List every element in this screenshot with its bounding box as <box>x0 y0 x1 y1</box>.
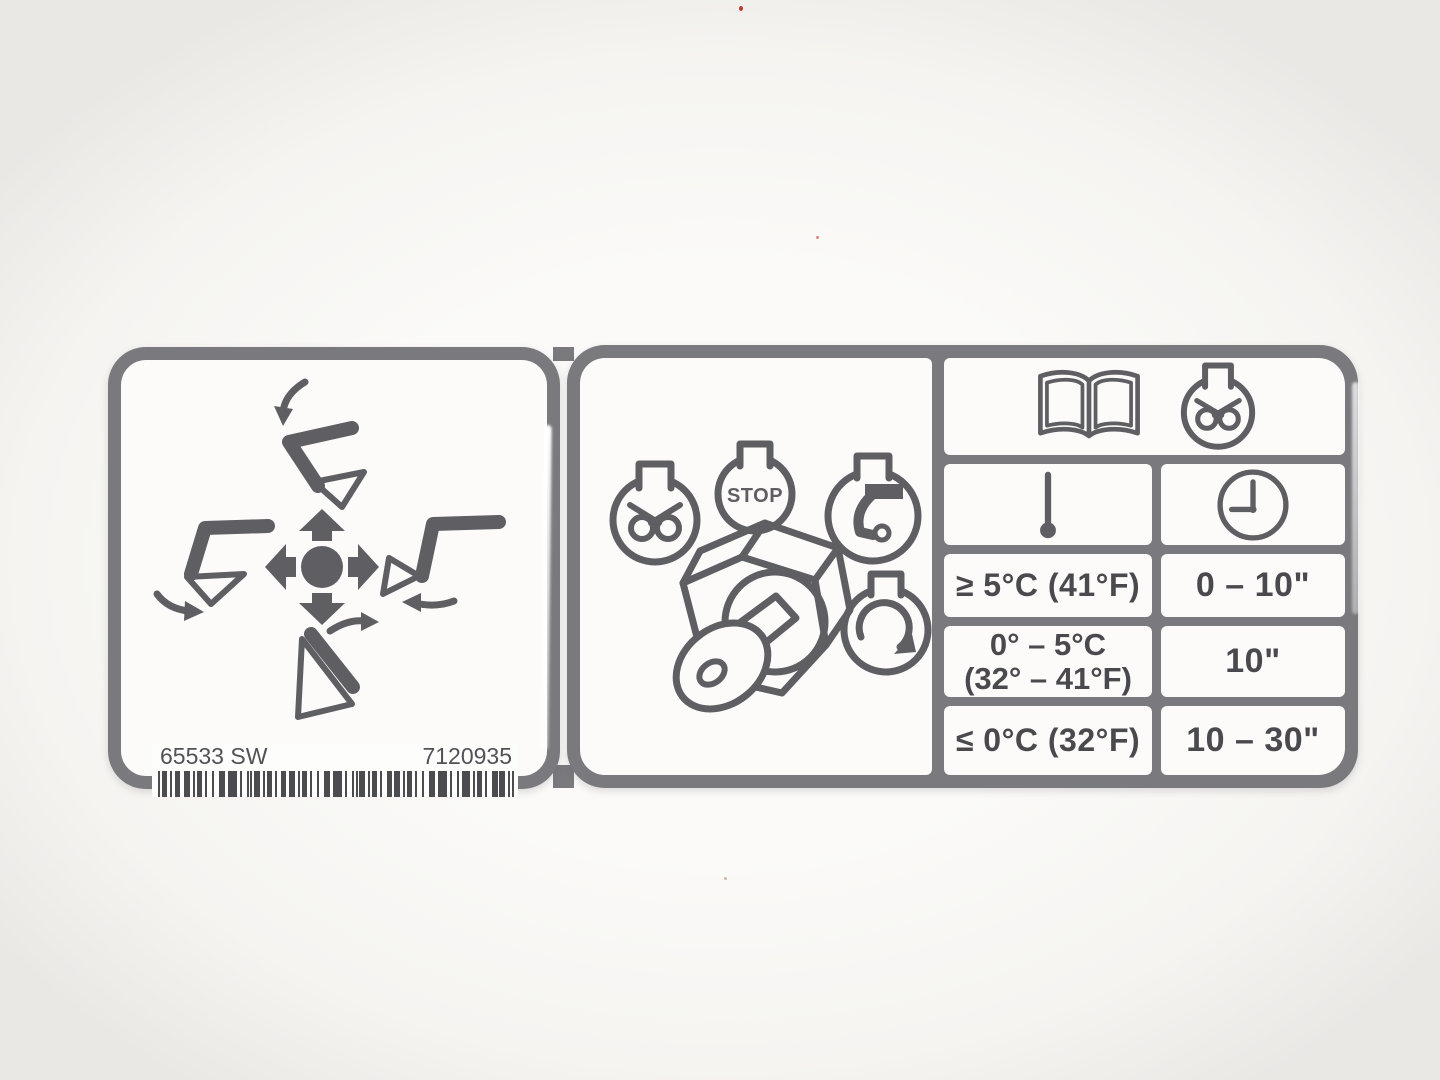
thermometer-icon <box>1028 467 1068 543</box>
start-position-icon <box>844 574 928 672</box>
time-column-header <box>1161 464 1345 545</box>
ignition-preheat-sticker: STOP <box>567 345 1358 788</box>
time-value: 10" <box>1225 642 1280 681</box>
part-number-strip: 65533 SW 7120935 <box>152 744 518 797</box>
photo-speck <box>739 6 743 11</box>
part-number-right: 7120935 <box>422 743 512 770</box>
table-row-3-time: 10 – 30" <box>1161 706 1345 775</box>
table-row-2-time: 10" <box>1161 626 1345 697</box>
sticker-border-bridge-top <box>553 347 574 361</box>
temperature-value-line1: 0° – 5°C <box>990 628 1106 662</box>
glare-streak <box>1352 382 1359 614</box>
glow-plug-icon <box>1176 359 1260 455</box>
temperature-value: ≤ 0°C (32°F) <box>956 722 1140 759</box>
temperature-column-header <box>944 464 1152 545</box>
table-row-1-time: 0 – 10" <box>1161 554 1345 617</box>
glow-plug-position-icon <box>613 464 697 562</box>
time-value: 0 – 10" <box>1196 566 1310 605</box>
bucket-dump-icon <box>298 612 379 717</box>
table-row-2-temperature: 0° – 5°C (32° – 41°F) <box>944 626 1152 697</box>
barcode <box>158 771 514 797</box>
time-value: 10 – 30" <box>1186 721 1320 760</box>
photo-speck <box>816 236 819 239</box>
temperature-value-line2: (32° – 41°F) <box>964 662 1132 696</box>
temperature-value: ≥ 5°C (41°F) <box>956 567 1140 604</box>
stop-position-icon: STOP <box>718 444 792 531</box>
bucket-curl-right-icon <box>383 522 499 612</box>
table-row-3-temperature: ≤ 0°C (32°F) <box>944 706 1152 775</box>
bucket-lower-icon <box>274 382 364 507</box>
joystick-diagram <box>121 360 547 776</box>
joystick-control-sticker <box>108 347 560 789</box>
bucket-curl-left-icon <box>157 526 268 621</box>
run-position-icon <box>828 456 918 561</box>
stop-label: STOP <box>727 485 783 507</box>
part-number-left: 65533 SW <box>160 743 267 770</box>
ignition-key-panel: STOP <box>580 358 932 775</box>
photo-of-equipment-decal: STOP <box>0 0 1440 1080</box>
clock-icon <box>1213 465 1293 545</box>
ignition-key-switch-icon <box>659 523 850 727</box>
joystick-sticker-face <box>121 360 547 776</box>
operator-manual-icon <box>1030 364 1148 450</box>
photo-speck <box>724 877 727 880</box>
table-row-1-temperature: ≥ 5°C (41°F) <box>944 554 1152 617</box>
table-header-cell <box>944 358 1345 455</box>
ignition-diagram: STOP <box>580 358 932 775</box>
joystick-4way-icon <box>265 509 379 625</box>
